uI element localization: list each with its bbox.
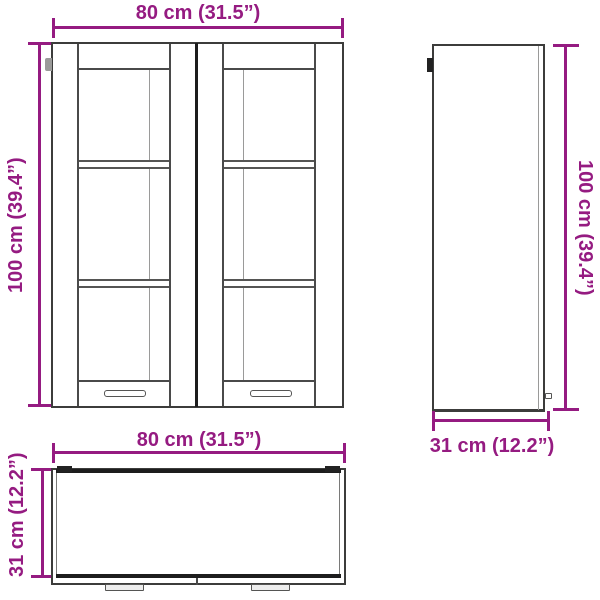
shelf-line (224, 279, 314, 288)
side-depth-dimension-line (433, 419, 550, 422)
door-handle (250, 390, 292, 397)
interior-edge-line (149, 70, 150, 380)
dimension-cap (52, 18, 55, 38)
side-height-dimension-line (564, 45, 567, 411)
front-width-label: 80 cm (31.5”) (53, 1, 343, 25)
dimension-cap (52, 443, 55, 463)
front-height-label: 100 cm (39.4”) (2, 43, 30, 407)
door-gap-line (195, 43, 198, 407)
side-height-label: 100 cm (39.4”) (571, 45, 599, 411)
door-rail-line (79, 380, 169, 382)
back-panel-edge (56, 469, 341, 473)
cabinet-side-outline (432, 44, 545, 412)
dimension-cap (343, 443, 346, 463)
front-height-dimension-line (38, 43, 41, 407)
side-depth-label: 31 cm (12.2”) (412, 434, 572, 458)
wall-bracket-mark (325, 466, 340, 472)
wall-bracket-mark (427, 58, 433, 72)
front-panel-edge (56, 574, 341, 578)
dimension-cap (28, 42, 52, 45)
door-stile-line (314, 44, 316, 406)
shelf-line (79, 160, 169, 169)
front-width-dimension-line (53, 26, 343, 29)
shelf-line (224, 160, 314, 169)
door-handle-top (251, 584, 290, 591)
door-gap-notch (196, 578, 198, 585)
door-rail-line (224, 68, 314, 70)
shelf-line (79, 279, 169, 288)
dimension-cap (547, 411, 550, 431)
interior-edge-line (243, 70, 244, 380)
door-handle-side (545, 393, 552, 399)
dimension-cap (31, 468, 53, 471)
top-depth-dimension-line (41, 469, 44, 578)
top-depth-label: 31 cm (12.2”) (3, 445, 31, 585)
door-stile-line (169, 44, 171, 406)
dimension-cap (28, 404, 52, 407)
door-stile-line (77, 44, 79, 406)
door-handle-top (105, 584, 144, 591)
door-stile-line (222, 44, 224, 406)
top-width-dimension-line (53, 451, 345, 454)
dimension-cap (341, 18, 344, 38)
door-handle (104, 390, 146, 397)
wall-bracket-mark (45, 58, 52, 71)
dimension-cap (31, 575, 53, 578)
dimension-cap (432, 411, 435, 431)
wall-bracket-mark (57, 466, 72, 472)
door-front-edge-line (538, 46, 539, 410)
dimension-diagram: 80 cm (31.5”) 100 cm (39.4”) (0, 0, 600, 600)
door-rail-line (79, 68, 169, 70)
cabinet-top-inner-panel (56, 472, 340, 577)
door-rail-line (224, 380, 314, 382)
top-width-label: 80 cm (31.5”) (53, 428, 345, 452)
